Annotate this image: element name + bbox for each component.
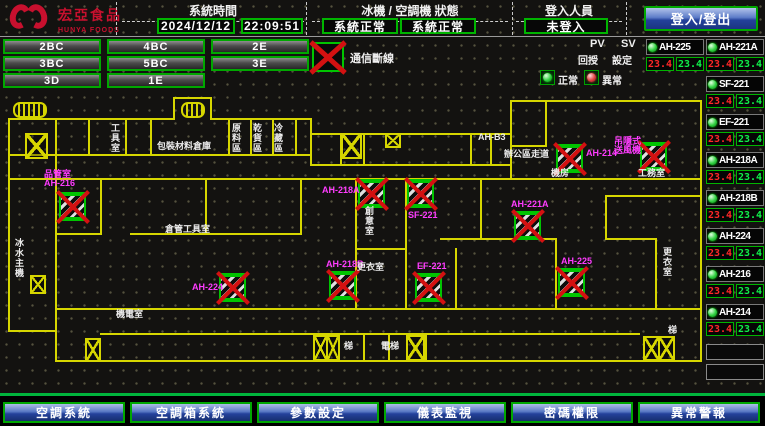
setting-legend-label: 設定 xyxy=(612,52,632,67)
unit-values: 23.423.4 xyxy=(646,57,704,71)
header-separator xyxy=(0,36,765,37)
map-wall xyxy=(425,335,427,362)
abnormal-legend-label: 異常 xyxy=(602,72,622,87)
room-label: 乾貨區 xyxy=(252,123,262,153)
sv-value: 23.4 xyxy=(736,246,764,260)
pv-value: 23.4 xyxy=(646,57,674,71)
unit-label: AH-225 xyxy=(646,39,704,55)
map-wall xyxy=(8,118,10,332)
comm-loss-icon xyxy=(312,42,344,72)
nav-button-密碼權限[interactable]: 密碼權限 xyxy=(511,402,633,423)
map-wall xyxy=(480,178,482,240)
map-wall xyxy=(55,233,102,235)
map-wall xyxy=(310,118,312,166)
sidebar-empty-slot xyxy=(706,344,764,360)
pv-value: 23.4 xyxy=(706,170,734,184)
nav-button-儀表監視[interactable]: 儀表監視 xyxy=(384,402,506,423)
sidebar-unit-AH-214[interactable]: AH-21423.423.4 xyxy=(706,304,764,336)
ahu-device-AH-216[interactable] xyxy=(59,192,86,221)
feedback-legend-label: 回授 xyxy=(578,52,598,67)
elevator-icon xyxy=(385,133,401,148)
floor-button-2BC[interactable]: 2BC xyxy=(3,39,101,54)
elevator-icon xyxy=(25,133,48,159)
sv-value: 23.4 xyxy=(736,94,764,108)
unit-label: AH-216 xyxy=(706,266,764,282)
nav-button-參數設定[interactable]: 參數設定 xyxy=(257,402,379,423)
chiller-status-value: 系統正常 xyxy=(322,18,398,34)
room-label: 梯 xyxy=(344,341,353,351)
logo-name: 宏亞食品 xyxy=(58,5,122,25)
sv-value: 23.4 xyxy=(676,57,704,71)
status-led-icon xyxy=(708,118,717,127)
device-label-AH-218A: AH-218A xyxy=(322,186,360,195)
abnormal-led-icon xyxy=(584,70,599,85)
unit-values: 23.423.4 xyxy=(706,284,764,298)
unit-label: AH-218B xyxy=(706,190,764,206)
map-wall xyxy=(125,118,127,156)
status-led-icon xyxy=(708,308,717,317)
header-divider xyxy=(626,2,627,35)
device-label-AH-216: 品管室 AH-216 xyxy=(44,170,75,188)
system-time-value: 22:09:51 xyxy=(241,18,303,34)
ac-status-value: 系統正常 xyxy=(400,18,476,34)
comm-loss-label: 通信斷線 xyxy=(350,50,394,66)
pv-value: 23.4 xyxy=(706,284,734,298)
device-label-AH-225: AH-225 xyxy=(561,257,592,266)
map-wall xyxy=(510,145,547,147)
sidebar-unit-AH-225[interactable]: AH-22523.423.4 xyxy=(646,39,704,71)
room-label: 工務室 xyxy=(638,168,665,178)
unit-label: AH-214 xyxy=(706,304,764,320)
sv-value: 23.4 xyxy=(736,284,764,298)
map-wall xyxy=(470,133,472,166)
sidebar-unit-EF-221[interactable]: EF-22123.423.4 xyxy=(706,114,764,146)
nav-divider xyxy=(0,393,765,396)
elevator-icon xyxy=(643,336,675,361)
unit-label: AH-224 xyxy=(706,228,764,244)
pv-value: 23.4 xyxy=(706,246,734,260)
room-label: 梯 xyxy=(668,325,677,335)
map-wall xyxy=(210,97,212,120)
ahu-device-AH-218A[interactable] xyxy=(358,179,385,208)
ahu-device-EF-221[interactable] xyxy=(415,273,442,302)
unit-values: 23.423.4 xyxy=(706,57,764,71)
hmi-screen: 宏亞食品 HUNYA FOODS 系統時間 2024/12/12 22:09:5… xyxy=(0,0,765,426)
device-label-EF-221: EF-221 xyxy=(417,262,447,271)
map-wall xyxy=(130,233,302,235)
unit-name: AH-214 xyxy=(719,307,750,318)
stair-icon xyxy=(181,102,205,118)
room-label: 冷藏區 xyxy=(273,123,283,153)
sv-value: 23.4 xyxy=(736,57,764,71)
map-wall xyxy=(173,97,175,120)
unit-name: AH-218B xyxy=(719,193,757,204)
status-led-icon xyxy=(708,232,717,241)
map-wall xyxy=(455,248,457,310)
hunya-logo-icon xyxy=(8,3,54,33)
map-wall xyxy=(150,118,152,156)
device-label-FAN-B3: 吊隱式 送風機 xyxy=(614,137,641,155)
system-date-value: 2024/12/12 xyxy=(157,18,235,34)
unit-values: 23.423.4 xyxy=(706,208,764,222)
unit-name: AH-216 xyxy=(719,269,750,280)
floor-button-3D[interactable]: 3D xyxy=(3,73,101,88)
map-wall xyxy=(8,154,312,156)
sv-value: 23.4 xyxy=(736,132,764,146)
map-wall xyxy=(228,118,230,156)
status-led-icon xyxy=(708,270,717,279)
nav-button-空調箱系統[interactable]: 空調箱系統 xyxy=(130,402,252,423)
room-label: 冰水主機 xyxy=(14,238,24,278)
unit-name: AH-221A xyxy=(719,42,757,53)
room-label: 包裝材料倉庫 xyxy=(157,141,211,151)
elevator-icon xyxy=(341,133,362,159)
room-label: 原料區 xyxy=(231,123,241,153)
map-wall xyxy=(8,330,57,332)
map-wall xyxy=(605,238,657,240)
status-led-icon xyxy=(708,43,717,52)
floor-button-4BC[interactable]: 4BC xyxy=(107,39,205,54)
pv-value: 23.4 xyxy=(706,132,734,146)
unit-label: EF-221 xyxy=(706,114,764,130)
map-wall xyxy=(605,195,700,197)
header-divider xyxy=(512,2,513,35)
room-label: 機房 xyxy=(551,168,569,178)
unit-values: 23.423.4 xyxy=(706,322,764,336)
ahu-device-AH-218B[interactable] xyxy=(329,271,356,300)
normal-legend-label: 正常 xyxy=(558,72,578,87)
elevator-icon xyxy=(85,338,101,362)
pv-value: 23.4 xyxy=(706,322,734,336)
room-label: 辦公區走道 xyxy=(504,149,549,159)
floor-button-3BC[interactable]: 3BC xyxy=(3,56,101,71)
map-wall xyxy=(55,308,702,310)
stair-icon xyxy=(13,102,47,118)
map-wall xyxy=(510,100,512,180)
room-label: AH-B3 xyxy=(478,132,506,142)
sidebar-unit-SF-221[interactable]: SF-22123.423.4 xyxy=(706,76,764,108)
elevator-icon xyxy=(406,335,425,361)
map-wall xyxy=(605,195,607,240)
normal-led-icon xyxy=(540,70,555,85)
status-led-icon xyxy=(708,194,717,203)
map-wall xyxy=(300,178,302,235)
map-wall xyxy=(363,335,365,362)
unit-name: AH-218A xyxy=(719,155,757,166)
sv-value: 23.4 xyxy=(736,208,764,222)
pv-legend-label: PV xyxy=(590,38,605,50)
sidebar-unit-AH-218B[interactable]: AH-218B23.423.4 xyxy=(706,190,764,222)
sidebar-unit-AH-216[interactable]: AH-21623.423.4 xyxy=(706,266,764,298)
unit-values: 23.423.4 xyxy=(706,94,764,108)
map-wall xyxy=(355,248,407,250)
login-status-value: 未登入 xyxy=(524,18,608,34)
ahu-device-AH-224[interactable] xyxy=(219,273,246,302)
map-wall xyxy=(88,118,90,156)
room-label: 更衣室 xyxy=(357,262,384,272)
status-led-icon xyxy=(648,43,657,52)
floor-button-5BC[interactable]: 5BC xyxy=(107,56,205,71)
room-label: 倉管工具室 xyxy=(165,224,210,234)
nav-button-異常警報[interactable]: 異常警報 xyxy=(638,402,760,423)
map-wall xyxy=(510,100,702,102)
unit-name: EF-221 xyxy=(719,117,749,128)
room-label: 機電室 xyxy=(116,309,143,319)
unit-label: AH-218A xyxy=(706,152,764,168)
device-label-SF-221: SF-221 xyxy=(408,211,438,220)
ahu-device-SF-221[interactable] xyxy=(407,179,434,208)
unit-values: 23.423.4 xyxy=(706,246,764,260)
pv-value: 23.4 xyxy=(706,94,734,108)
room-label: 創意室 xyxy=(364,206,374,236)
device-label-AH-214: AH-214 xyxy=(586,149,617,158)
map-wall xyxy=(545,100,547,147)
room-label: 工具室 xyxy=(110,123,120,153)
floor-button-2E[interactable]: 2E xyxy=(211,39,309,54)
map-wall xyxy=(295,118,297,156)
map-wall xyxy=(55,118,57,156)
room-label: 更衣室 xyxy=(662,247,672,277)
device-label-AH-224: AH-224 xyxy=(192,283,223,292)
unit-values: 23.423.4 xyxy=(706,170,764,184)
sv-legend-label: SV xyxy=(621,38,636,50)
map-wall xyxy=(700,100,702,362)
map-wall xyxy=(100,178,102,235)
pv-value: 23.4 xyxy=(706,57,734,71)
logo: 宏亞食品 HUNYA FOODS xyxy=(58,5,122,34)
ahu-device-FAN-B3[interactable] xyxy=(640,142,667,171)
header-divider xyxy=(116,2,117,35)
ahu-device-AH-221A[interactable] xyxy=(514,211,541,240)
unit-values: 23.423.4 xyxy=(706,132,764,146)
unit-label: SF-221 xyxy=(706,76,764,92)
elevator-icon xyxy=(30,275,46,294)
unit-name: SF-221 xyxy=(719,79,749,90)
sidebar-unit-AH-224[interactable]: AH-22423.423.4 xyxy=(706,228,764,260)
floor-button-3E[interactable]: 3E xyxy=(211,56,309,71)
map-wall xyxy=(363,133,365,166)
map-wall xyxy=(100,333,640,335)
unit-name: AH-225 xyxy=(659,42,690,53)
unit-name: AH-224 xyxy=(719,231,750,242)
status-led-icon xyxy=(708,80,717,89)
unit-label: AH-221A xyxy=(706,39,764,55)
ahu-device-AH-225[interactable] xyxy=(558,268,585,297)
sv-value: 23.4 xyxy=(736,170,764,184)
map-wall xyxy=(173,97,212,99)
logo-subtitle: HUNYA FOODS xyxy=(58,27,122,34)
map-wall xyxy=(55,360,702,362)
nav-button-空調系統[interactable]: 空調系統 xyxy=(3,402,125,423)
pv-value: 23.4 xyxy=(706,208,734,222)
status-led-icon xyxy=(708,156,717,165)
floor-button-1E[interactable]: 1E xyxy=(107,73,205,88)
sv-value: 23.4 xyxy=(736,322,764,336)
sidebar-empty-slot xyxy=(706,364,764,380)
login-logout-button[interactable]: 登入/登出 xyxy=(644,6,758,31)
header-divider xyxy=(306,2,307,35)
map-wall xyxy=(655,238,657,310)
sidebar-unit-AH-218A[interactable]: AH-218A23.423.4 xyxy=(706,152,764,184)
elevator-icon xyxy=(313,335,340,361)
device-label-AH-221A: AH-221A xyxy=(511,200,549,209)
room-label: 電梯 xyxy=(381,341,399,351)
sidebar-unit-AH-221A[interactable]: AH-221A23.423.4 xyxy=(706,39,764,71)
